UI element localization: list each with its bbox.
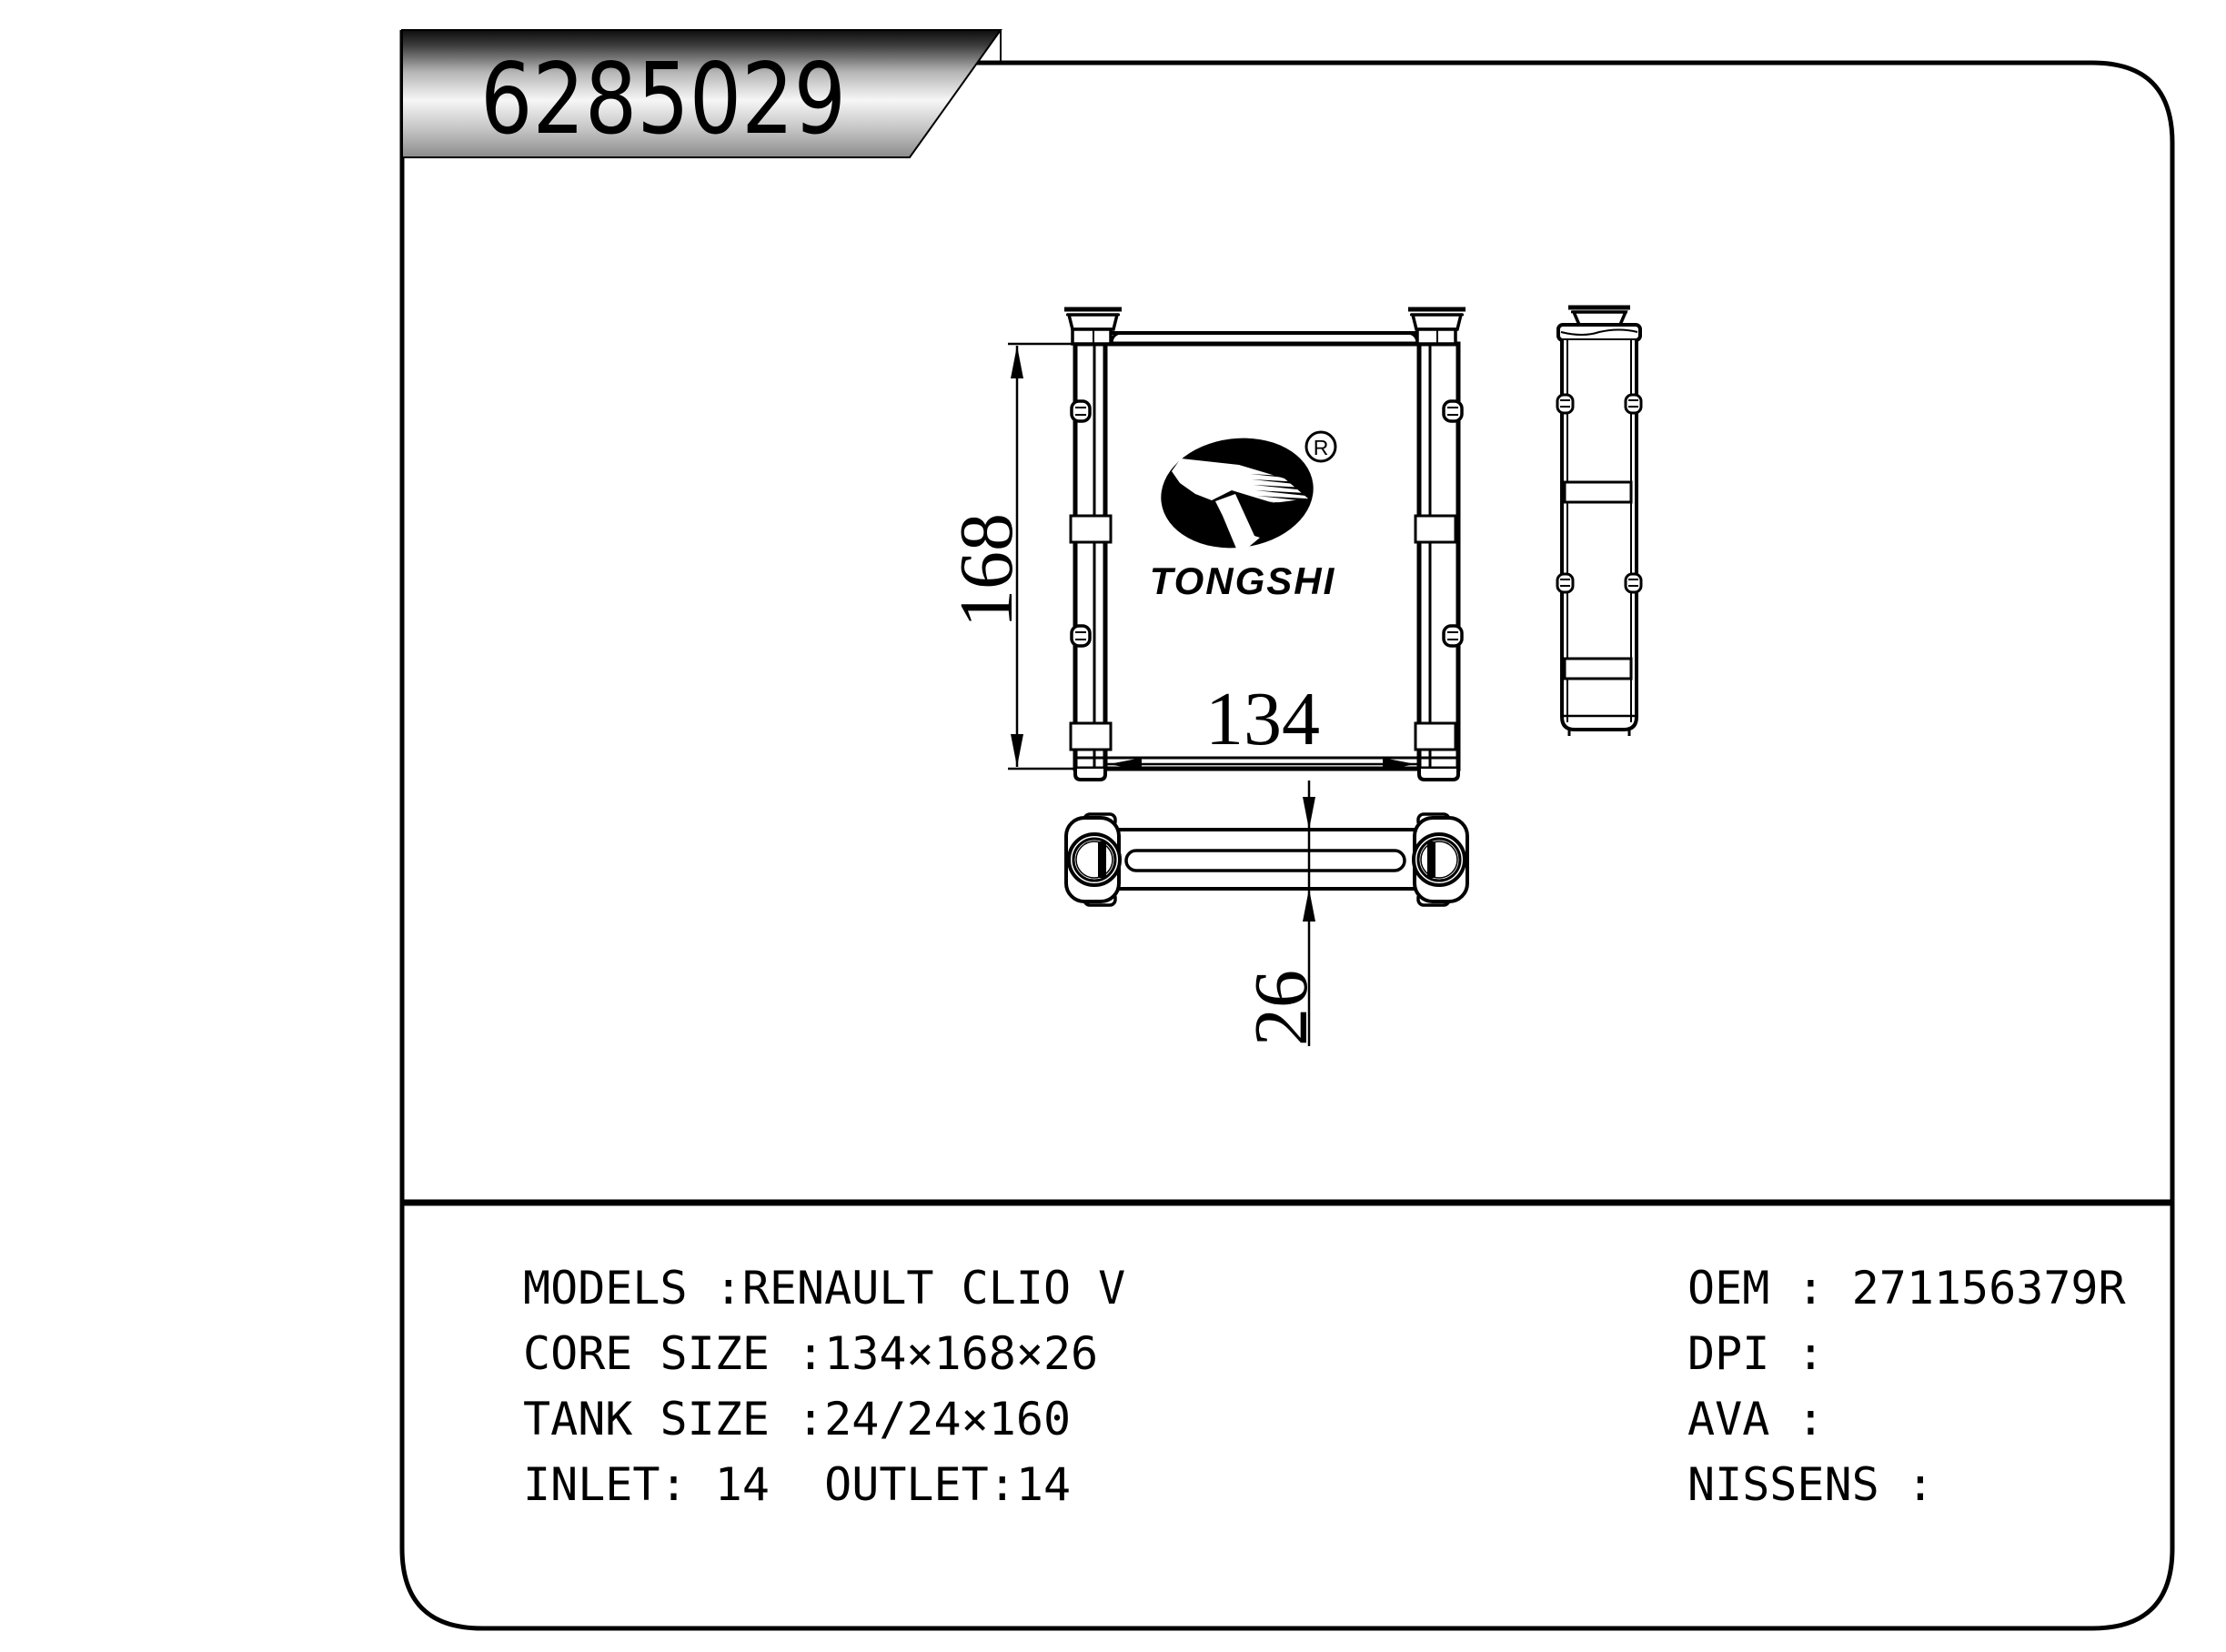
registered-letter: R [1314,436,1329,459]
dimension-height: 168 [944,344,1073,769]
arrow-down-icon [1011,734,1023,767]
spec-models: MODELS :RENAULT CLIO V [523,1262,1125,1315]
spec-tank-size: TANK SIZE :24/24×160 [523,1393,1071,1445]
spec-ava: AVA : [1687,1393,1825,1445]
spec-core-size: CORE SIZE :134×168×26 [523,1327,1098,1380]
right-tank-slot [1415,723,1455,750]
left-tank-slot [1071,723,1111,750]
arrow-up-icon [1011,346,1023,378]
spec-nissens: NISSENS : [1687,1458,1934,1511]
core-slot [1126,851,1405,871]
dimension-depth: 26 [1239,781,1324,1046]
outlet-fitting [1408,309,1466,344]
dim-label-134: 134 [1205,677,1320,761]
side-view [1557,307,1641,736]
spec-inlet-outlet: INLET: 14 OUTLET:14 [523,1458,1071,1511]
arrow-down-icon [1303,797,1315,830]
top-view-left-fitting [1066,814,1120,905]
spec-dpi: DPI : [1687,1327,1825,1380]
spec-oem: OEM : 271156379R [1687,1262,2127,1315]
top-view-right-fitting [1414,814,1467,905]
dim-label-26: 26 [1239,970,1324,1046]
datasheet-page: 6285029 [0,0,2226,1652]
technical-drawing-canvas: 6285029 [0,0,2226,1652]
arrow-up-icon [1303,889,1315,922]
brand-name: TONGSHI [1150,559,1336,602]
side-band [1565,482,1631,502]
top-view [1066,814,1467,905]
dim-label-168: 168 [944,513,1029,628]
left-tank-slot [1071,516,1111,542]
part-number-banner: 6285029 [402,30,1001,157]
part-number: 6285029 [480,43,846,156]
spec-table: MODELS :RENAULT CLIO V CORE SIZE :134×16… [523,1262,2127,1511]
side-band [1565,659,1631,679]
right-tank-slot [1415,516,1455,542]
